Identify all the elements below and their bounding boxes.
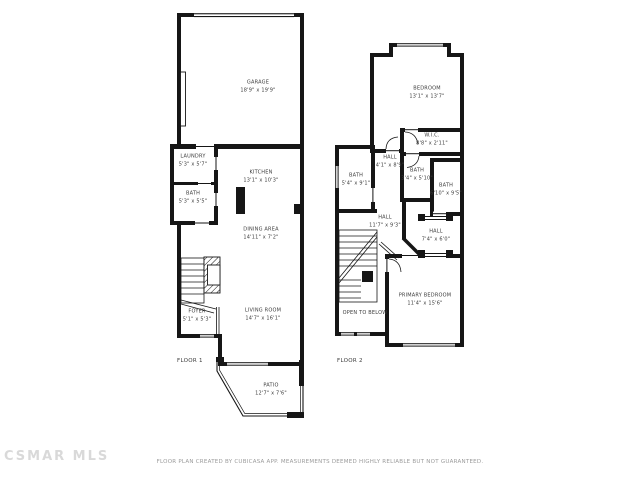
- room-name: GARAGE: [240, 79, 275, 87]
- room-name: PRIMARY BEDROOM: [399, 292, 452, 300]
- room-name: LAUNDRY: [179, 153, 207, 161]
- room-name: DINING AREA: [243, 226, 278, 234]
- room-dims: 6'10" x 9'5": [430, 190, 462, 198]
- room-dims: 5'3" x 5'5": [179, 198, 207, 206]
- room-name: OPEN TO BELOW: [343, 310, 388, 318]
- room-label-living-room: LIVING ROOM 14'7" x 16'1": [245, 307, 281, 323]
- room-label-patio: PATIO 12'7" x 7'6": [255, 382, 287, 398]
- floor2-chase-block: [362, 271, 373, 282]
- room-name: HALL: [376, 154, 404, 162]
- room-label-wic: W.I.C. 8'8" x 2'11": [416, 132, 448, 148]
- room-label-laundry: LAUNDRY 5'3" x 5'7": [179, 153, 207, 169]
- floor-plan-drawing: [0, 0, 640, 480]
- room-dims: 7'4" x 6'0": [422, 236, 450, 244]
- floor1-stair-void: [208, 265, 221, 285]
- room-dims: 14'11" x 7'2": [243, 234, 278, 242]
- room-dims: 13'1" x 10'3": [243, 177, 278, 185]
- room-name: W.I.C.: [416, 132, 448, 140]
- room-label-hall-small: HALL 7'4" x 6'0": [422, 228, 450, 244]
- room-label-hall-upper: HALL 4'1" x 8'9": [376, 154, 404, 170]
- room-dims: 18'9" x 19'9": [240, 87, 275, 95]
- room-label-garage: GARAGE 18'9" x 19'9": [240, 79, 275, 95]
- room-label-bedroom: BEDROOM 13'1" x 13'7": [409, 85, 444, 101]
- room-dims: 12'7" x 7'6": [255, 390, 287, 398]
- room-dims: 14'7" x 16'1": [245, 315, 281, 323]
- room-name: BATH: [179, 190, 207, 198]
- room-label-primary-bedroom: PRIMARY BEDROOM 11'4" x 15'6": [399, 292, 452, 308]
- room-dims: 11'7" x 9'3": [369, 222, 401, 230]
- floor-plan-page: GARAGE 18'9" x 19'9" LAUNDRY 5'3" x 5'7"…: [0, 0, 640, 480]
- room-name: BEDROOM: [409, 85, 444, 93]
- room-dims: 3'4" x 5'10": [401, 175, 433, 183]
- room-dims: 8'8" x 2'11": [416, 140, 448, 148]
- room-label-foyer: FOYER 5'1" x 5'3": [183, 308, 211, 324]
- room-label-bath-left: BATH 5'4" x 9'1": [342, 172, 370, 188]
- floor1-label: FLOOR 1: [177, 358, 203, 364]
- room-dims: 4'1" x 8'9": [376, 162, 404, 170]
- room-label-dining-area: DINING AREA 14'11" x 7'2": [243, 226, 278, 242]
- floor2-diagonal-wall: [403, 238, 419, 254]
- room-name: FOYER: [183, 308, 211, 316]
- room-label-open-to-below: OPEN TO BELOW: [343, 310, 388, 318]
- room-name: BATH: [401, 167, 433, 175]
- room-label-bath-middle: BATH 3'4" x 5'10": [401, 167, 433, 183]
- room-dims: 5'3" x 5'7": [179, 161, 207, 169]
- room-label-hall-main: HALL 11'7" x 9'3": [369, 214, 401, 230]
- room-name: PATIO: [255, 382, 287, 390]
- room-label-bath-f1: BATH 5'3" x 5'5": [179, 190, 207, 206]
- disclaimer-text: FLOOR PLAN CREATED BY CUBICASA APP. MEAS…: [0, 459, 640, 465]
- room-dims: 5'4" x 9'1": [342, 180, 370, 188]
- room-name: HALL: [422, 228, 450, 236]
- room-dims: 5'1" x 5'3": [183, 316, 211, 324]
- room-name: BATH: [342, 172, 370, 180]
- room-name: LIVING ROOM: [245, 307, 281, 315]
- floor2-stairs-icon: [339, 230, 399, 302]
- room-label-bath-right: BATH 6'10" x 9'5": [430, 182, 462, 198]
- room-name: KITCHEN: [243, 169, 278, 177]
- room-name: BATH: [430, 182, 462, 190]
- room-dims: 13'1" x 13'7": [409, 93, 444, 101]
- room-name: HALL: [369, 214, 401, 222]
- floor2-label: FLOOR 2: [337, 358, 363, 364]
- room-dims: 11'4" x 15'6": [399, 300, 452, 308]
- room-label-kitchen: KITCHEN 13'1" x 10'3": [243, 169, 278, 185]
